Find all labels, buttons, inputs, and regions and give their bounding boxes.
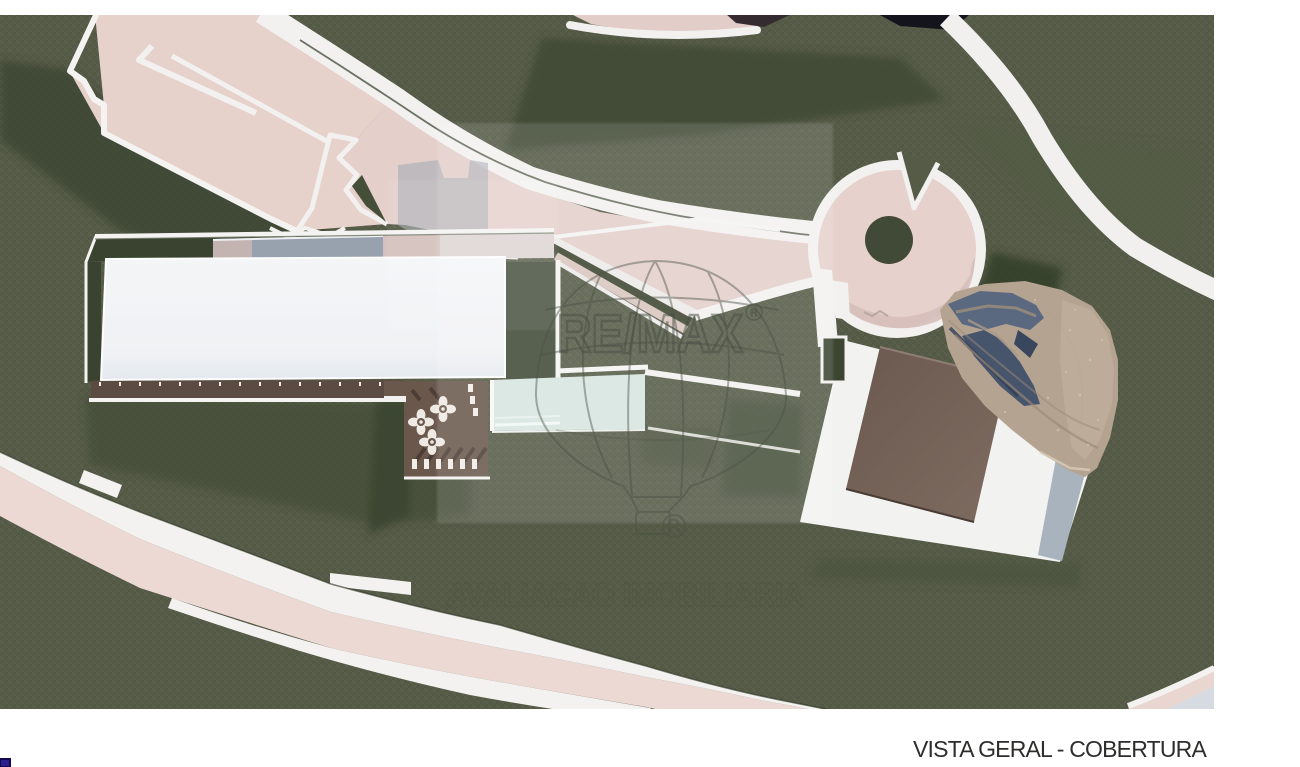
svg-text:R: R	[750, 308, 757, 319]
svg-text:AVALIACAO IMOBILIARIA: AVALIACAO IMOBILIARIA	[446, 577, 804, 613]
svg-text:RE/MAX: RE/MAX	[557, 304, 743, 364]
svg-text:VISTA GERAL - COBERTURA: VISTA GERAL - COBERTURA	[913, 736, 1207, 762]
